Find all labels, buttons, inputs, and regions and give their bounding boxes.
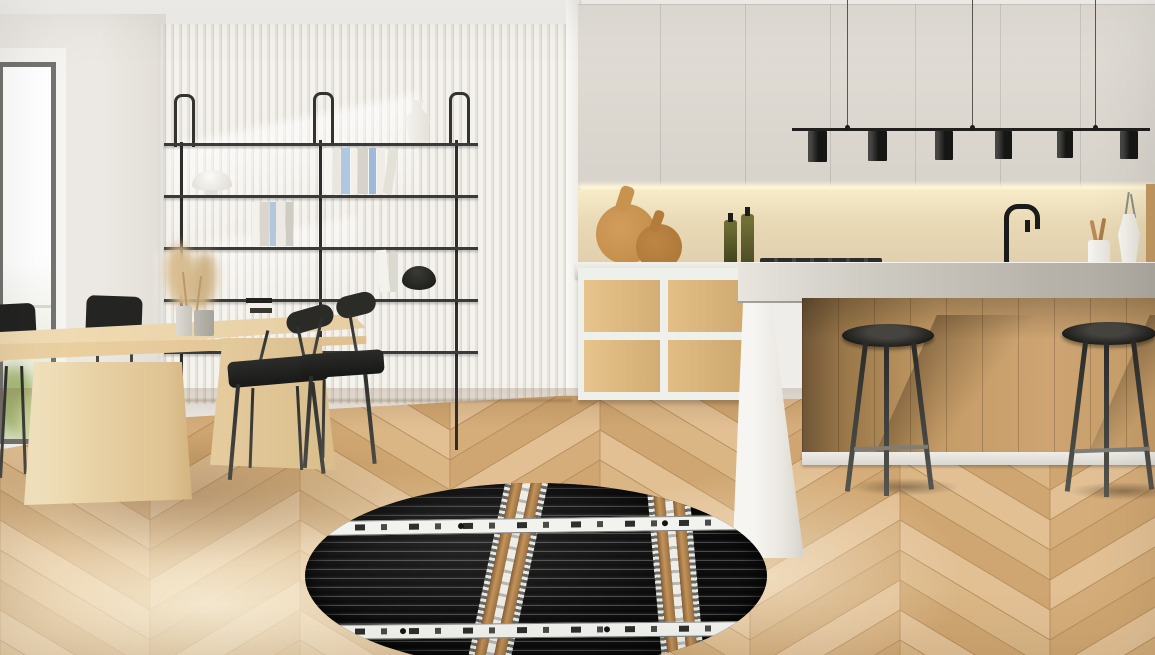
- pendant-cord: [1095, 0, 1096, 129]
- pendant-joint: [845, 125, 850, 130]
- table-vase: [176, 306, 192, 336]
- shelf-post: [455, 140, 458, 450]
- cabinet-door: [584, 280, 660, 332]
- cabinet-door: [668, 340, 744, 392]
- cabinet-door: [668, 280, 744, 332]
- book: [341, 148, 350, 194]
- faucet-riser: [1004, 220, 1009, 268]
- oil-bottle: [741, 214, 754, 267]
- label-logo-dot: [458, 523, 464, 529]
- pendant-shade: [995, 131, 1012, 159]
- label-logo-dot: [400, 628, 406, 634]
- table-vase: [194, 310, 214, 336]
- book: [260, 202, 269, 246]
- faucet-arc: [1004, 204, 1040, 229]
- shelf-board: [164, 247, 478, 250]
- island-counter: [738, 262, 1155, 303]
- table-pedestal: [24, 362, 192, 505]
- upper-cabinets: [578, 4, 1155, 191]
- shelf-hook: [449, 92, 470, 145]
- label-logo-dot: [604, 626, 610, 632]
- cabinet-seam: [745, 4, 746, 188]
- black-bowl: [402, 266, 436, 290]
- book: [369, 148, 376, 194]
- cabinet-door: [584, 340, 660, 392]
- book: [277, 202, 285, 246]
- pendant-shade: [868, 131, 887, 161]
- shelf-board: [164, 195, 478, 198]
- book: [286, 202, 293, 246]
- oil-bottle-cap: [745, 207, 750, 216]
- cabinet-seam: [830, 4, 831, 188]
- book: [351, 148, 357, 194]
- pendant-shade: [1120, 131, 1138, 159]
- pendant-shade: [808, 131, 827, 162]
- faucet-spout: [1025, 220, 1030, 232]
- oil-bottle-cap: [728, 213, 733, 222]
- interior-photo: [0, 0, 1155, 655]
- book: [270, 202, 276, 246]
- pendant-shade: [1057, 131, 1073, 158]
- oil-bottle: [724, 220, 737, 267]
- books-row: [252, 202, 294, 246]
- pendant-shade: [935, 131, 953, 160]
- book: [390, 252, 398, 292]
- pendant-cord: [972, 0, 973, 129]
- cabinet-seam: [915, 4, 916, 188]
- stool-leg: [884, 344, 889, 496]
- table-books: [250, 308, 272, 313]
- base-cabinets: [578, 268, 750, 400]
- book: [333, 148, 340, 194]
- shelf-hook: [174, 94, 195, 147]
- book: [358, 148, 368, 194]
- book: [324, 148, 332, 194]
- stool-floor-shadow: [850, 478, 960, 496]
- shelf-hook: [313, 92, 334, 145]
- label-logo-dot: [662, 520, 668, 526]
- cabinet-seam: [660, 4, 661, 188]
- island-toe-kick: [802, 452, 1155, 465]
- pendant-joint: [970, 125, 975, 130]
- heating-film-cutaway: [305, 483, 767, 655]
- book: [252, 202, 259, 246]
- stool-floor-shadow: [1068, 482, 1155, 500]
- white-bowl-foot: [206, 190, 218, 195]
- cabinet-seam: [1000, 4, 1001, 188]
- shelf-board: [164, 143, 478, 146]
- books-row: [324, 148, 396, 194]
- book: [383, 148, 398, 195]
- pendant-joint: [1093, 125, 1098, 130]
- stool-leg: [1104, 342, 1109, 497]
- cabinet-seam: [1080, 4, 1081, 188]
- pendant-cord: [847, 0, 848, 129]
